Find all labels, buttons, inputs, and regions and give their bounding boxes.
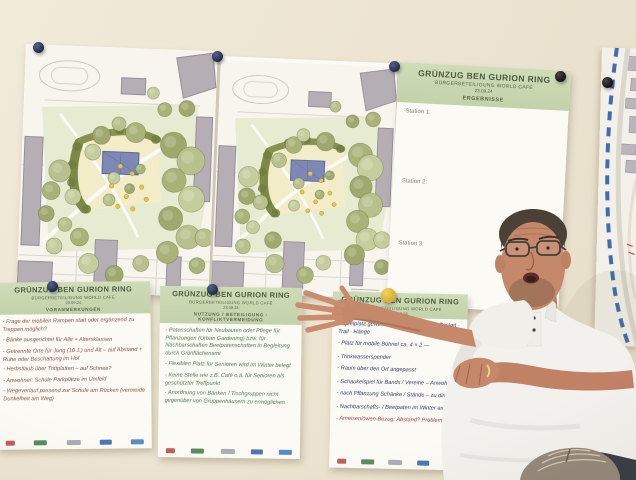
mouth-inner (526, 276, 536, 282)
workshop-wall-photo: GRÜNZUG BEN GURION RING BÜRGERBETEILIGUN… (0, 0, 636, 480)
presenter-figure (0, 0, 636, 480)
eye-right (546, 246, 549, 249)
ear-right (561, 251, 571, 269)
eye-left (515, 247, 518, 250)
ear-left (495, 255, 505, 273)
pointing-hand (298, 288, 356, 330)
pointing-arm (298, 288, 534, 349)
polo-button (532, 328, 535, 331)
presenter-head (495, 209, 571, 310)
